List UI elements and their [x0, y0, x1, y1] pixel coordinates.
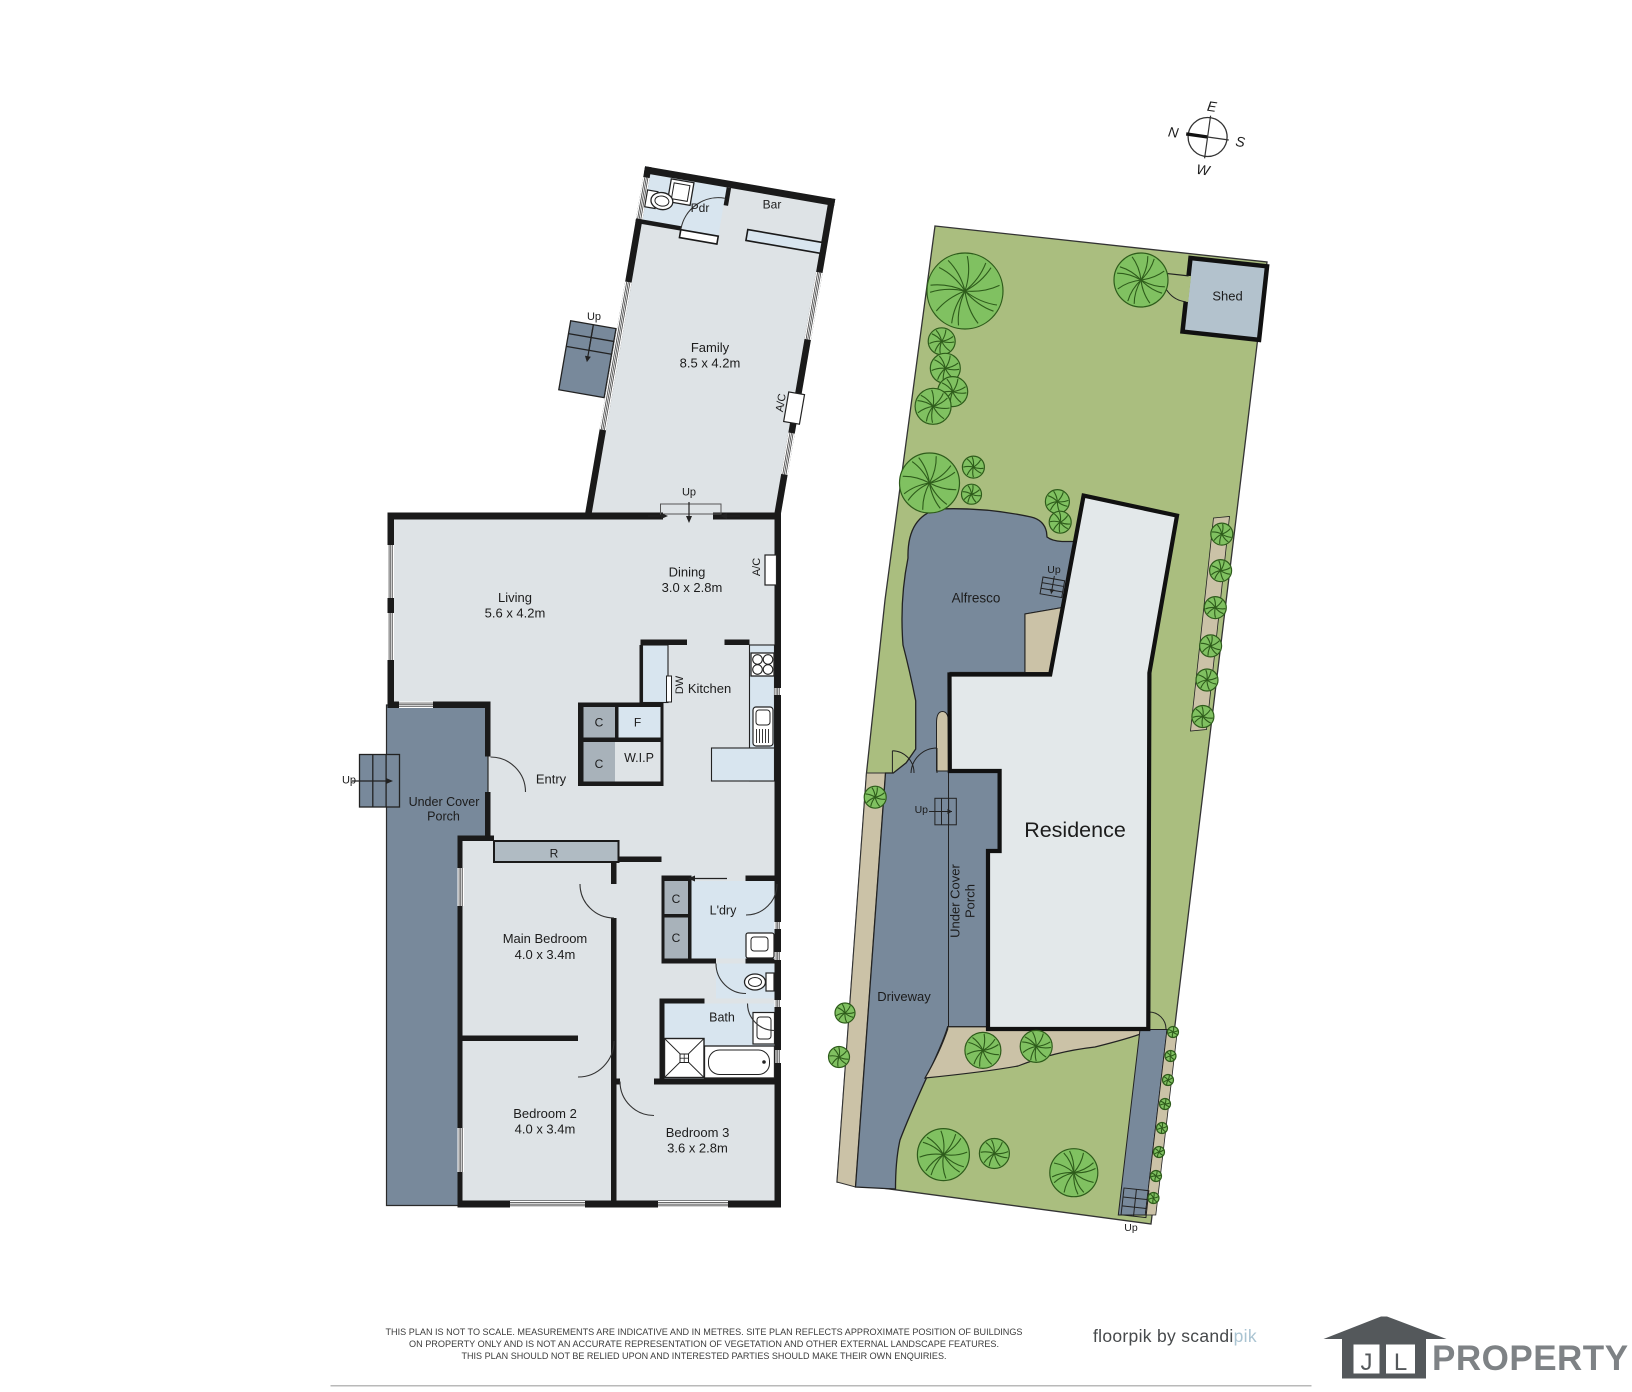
svg-text:L'dry: L'dry [710, 904, 737, 918]
svg-text:Bar: Bar [763, 198, 782, 212]
svg-text:Under Cover: Under Cover [409, 795, 480, 809]
svg-text:C: C [595, 757, 604, 771]
svg-text:Driveway: Driveway [877, 989, 931, 1004]
svg-text:Up: Up [587, 311, 601, 323]
svg-text:Up: Up [342, 775, 356, 787]
svg-text:Porch: Porch [427, 810, 460, 824]
svg-text:Bedroom 2: Bedroom 2 [513, 1106, 577, 1121]
svg-text:Pdr: Pdr [691, 201, 710, 215]
svg-text:Kitchen: Kitchen [688, 681, 731, 696]
svg-text:A/C: A/C [751, 558, 763, 576]
svg-text:F: F [634, 716, 641, 730]
svg-text:Up: Up [682, 487, 696, 499]
svg-text:Bath: Bath [709, 1011, 735, 1025]
svg-text:PROPERTY: PROPERTY [1432, 1339, 1629, 1378]
svg-text:Up: Up [1047, 564, 1061, 576]
svg-text:Porch: Porch [963, 884, 978, 918]
svg-text:THIS PLAN IS NOT TO SCALE. MEA: THIS PLAN IS NOT TO SCALE. MEASUREMENTS … [386, 1327, 1023, 1338]
svg-text:W.I.P: W.I.P [624, 751, 654, 765]
svg-text:Dining: Dining [669, 565, 706, 580]
svg-text:J: J [1361, 1349, 1373, 1376]
svg-text:3.6 x 2.8m: 3.6 x 2.8m [667, 1141, 728, 1156]
svg-text:C: C [672, 931, 681, 945]
svg-text:C: C [595, 716, 604, 730]
svg-text:W: W [1195, 161, 1212, 179]
svg-text:Under Cover: Under Cover [948, 863, 963, 937]
svg-text:S: S [1235, 133, 1247, 150]
svg-text:floorpik by scandipik: floorpik by scandipik [1093, 1326, 1257, 1346]
svg-text:C: C [672, 892, 681, 906]
svg-text:Up: Up [915, 804, 929, 816]
svg-text:5.6 x 4.2m: 5.6 x 4.2m [485, 606, 546, 621]
svg-text:4.0 x 3.4m: 4.0 x 3.4m [515, 947, 576, 962]
svg-text:ON PROPERTY ONLY AND IS NOT AN: ON PROPERTY ONLY AND IS NOT AN ACCURATE … [409, 1339, 999, 1350]
svg-text:THIS PLAN SHOULD NOT BE RELIED: THIS PLAN SHOULD NOT BE RELIED UPON AND … [462, 1351, 947, 1362]
svg-text:4.0 x 3.4m: 4.0 x 3.4m [515, 1122, 576, 1137]
svg-text:Living: Living [498, 590, 532, 605]
svg-text:Up: Up [1124, 1222, 1138, 1234]
svg-text:8.5 x 4.2m: 8.5 x 4.2m [680, 356, 741, 371]
svg-text:3.0 x 2.8m: 3.0 x 2.8m [662, 580, 723, 595]
svg-text:Alfresco: Alfresco [952, 591, 1001, 606]
svg-text:E: E [1206, 98, 1218, 115]
svg-text:Family: Family [691, 340, 730, 355]
svg-text:N: N [1167, 124, 1180, 141]
svg-text:Residence: Residence [1024, 818, 1126, 842]
svg-text:Shed: Shed [1212, 289, 1242, 304]
svg-text:L: L [1394, 1349, 1407, 1376]
svg-text:R: R [550, 847, 559, 861]
svg-text:DW: DW [674, 675, 686, 694]
svg-text:Entry: Entry [536, 772, 567, 787]
svg-text:Main Bedroom: Main Bedroom [503, 931, 588, 946]
svg-text:Bedroom 3: Bedroom 3 [666, 1125, 730, 1140]
